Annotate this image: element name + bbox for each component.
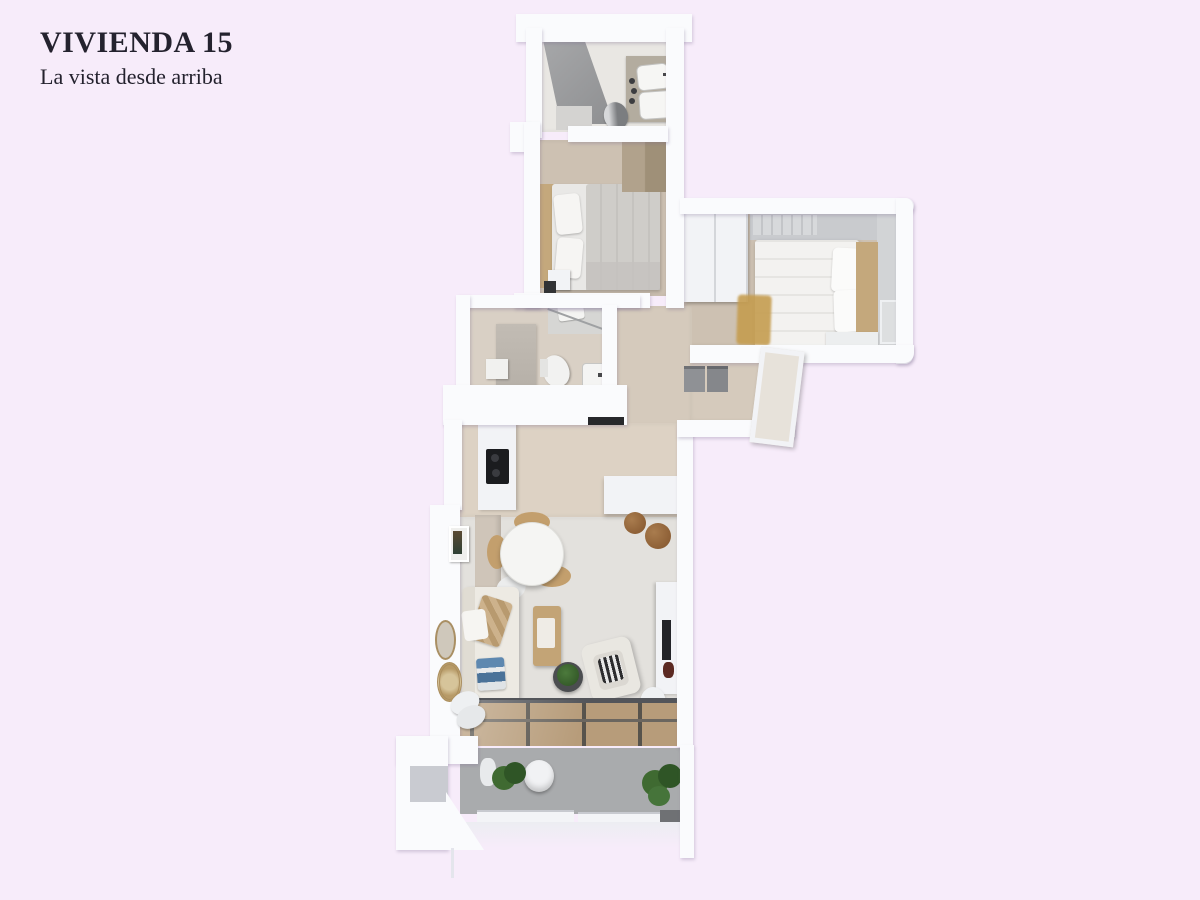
wall: [677, 425, 693, 747]
blanket-stack: [476, 657, 506, 691]
round-mirror: [435, 620, 456, 660]
stool-dark: [544, 281, 556, 293]
storage-box: [707, 366, 728, 392]
page: VIVIENDA 15 La vista desde arriba: [0, 0, 1200, 900]
wall: [896, 198, 913, 364]
plant: [557, 664, 579, 686]
wall: [524, 122, 540, 308]
tv: [662, 620, 671, 660]
wall: [680, 198, 914, 214]
toilet-tank: [540, 359, 548, 377]
throw-pillow: [461, 608, 489, 641]
plant: [648, 786, 670, 806]
terrace-stool: [524, 760, 554, 792]
island-counter: [604, 476, 679, 514]
pouf: [645, 523, 671, 549]
decor-vase: [663, 662, 674, 678]
plant: [658, 764, 682, 788]
toiletry-bottle: [629, 98, 635, 104]
wall: [602, 305, 617, 389]
wall: [444, 420, 462, 510]
wall-inner-shadow: [410, 766, 448, 802]
wall: [568, 126, 668, 142]
toiletry-bottle: [631, 88, 637, 94]
burner-icon: [492, 469, 500, 477]
plant: [504, 762, 526, 784]
pouf: [624, 512, 646, 534]
headboard: [856, 242, 878, 346]
wardrobe: [684, 212, 748, 302]
duvet-fold: [586, 262, 660, 290]
wall-drip-edge: [451, 848, 454, 878]
burner-icon: [491, 454, 499, 462]
bed-bench: [826, 332, 878, 346]
glass-sheen: [460, 700, 682, 746]
bench-cloth: [537, 618, 555, 648]
floorplan-render: [0, 0, 1200, 900]
toiletry-bottle: [629, 78, 635, 84]
wall-art-canvas: [453, 531, 462, 554]
dining-table: [500, 522, 564, 586]
storage-box: [684, 366, 705, 392]
wall: [666, 28, 684, 308]
bathroom-unit: [486, 359, 508, 379]
wall-ac-unit: [753, 215, 817, 235]
wardrobe: [622, 136, 668, 192]
wall: [456, 295, 470, 395]
rug: [736, 294, 772, 345]
wall: [680, 745, 694, 858]
kitchen-door-threshold: [588, 417, 624, 425]
terrace-parapet: [466, 822, 682, 848]
pillow: [553, 193, 583, 235]
